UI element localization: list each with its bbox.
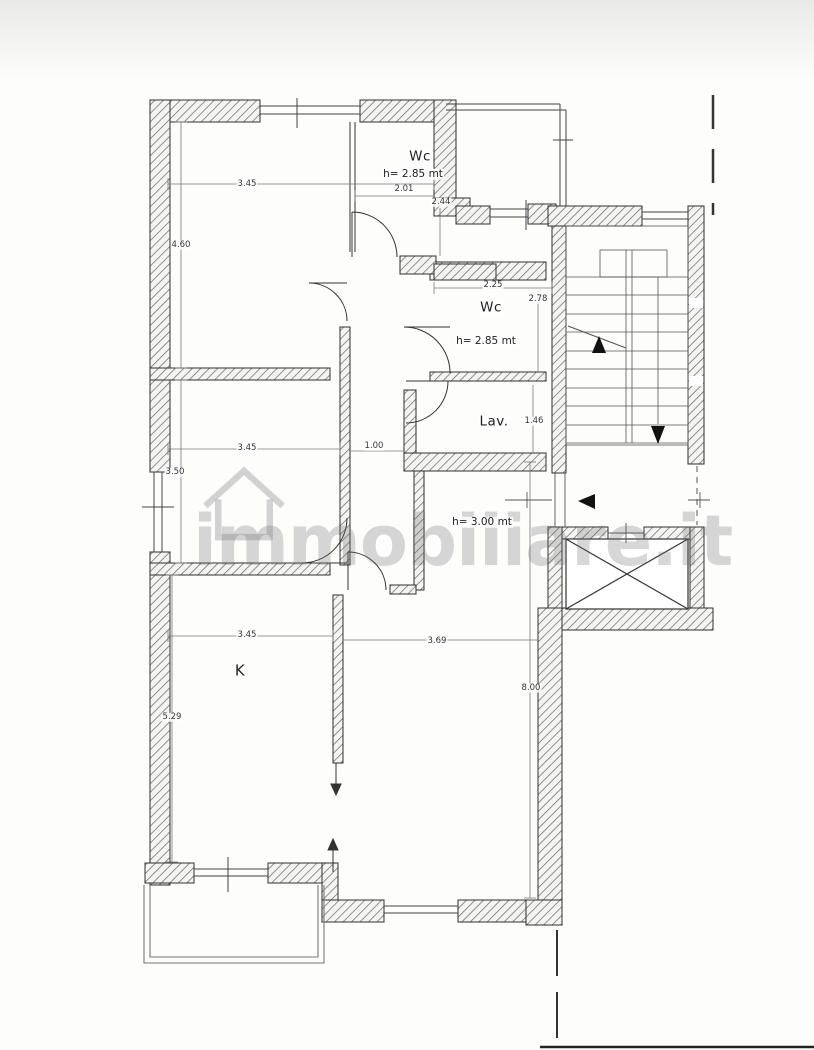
stairs-up-arrow-icon — [592, 336, 606, 353]
passage-down-arrow-icon — [331, 784, 341, 795]
dimension-label-mid-height: 3.50 — [165, 468, 186, 477]
dimension-label-corridor-width: 1.00 — [364, 442, 385, 451]
room-height-wc-top: h= 2.85 mt — [382, 169, 444, 180]
room-label-wc-middle: Wc — [479, 301, 503, 315]
watermark: immobiliare.it — [193, 500, 732, 582]
dimension-label-wc-mid-width: 2.25 — [483, 281, 504, 290]
room-label-laundry: Lav. — [478, 415, 509, 429]
dimension-label-wc-mid-height: 2.78 — [528, 295, 549, 304]
dimension-label-kitchen-height: 5.29 — [162, 713, 183, 722]
dimension-label-right-height: 8.00 — [521, 684, 542, 693]
dimension-label-laundry: 1.46 — [524, 417, 545, 426]
floor-plan-page: immobiliare.it Wc h= 2.85 mt Wc h= 2.85 … — [0, 0, 814, 1050]
stairs-down-arrow-icon — [651, 426, 665, 444]
dimension-label-top-height: 4.60 — [171, 241, 192, 250]
passage-up-arrow-icon — [328, 839, 338, 850]
passage-arrows — [328, 763, 341, 872]
room-label-wc-top: Wc — [408, 150, 432, 164]
room-label-kitchen: K — [234, 664, 246, 679]
balcony — [144, 885, 324, 963]
room-height-hallway: h= 3.00 mt — [451, 517, 513, 528]
dimension-label-kitchen-width: 3.45 — [237, 631, 258, 640]
dimension-label-mid-width: 3.45 — [237, 444, 258, 453]
staircase — [566, 226, 688, 445]
dimension-label-top-width: 3.45 — [237, 180, 258, 189]
dimension-label-wc-top-depth: 2.44 — [431, 198, 452, 207]
dimension-label-living-width: 3.69 — [427, 637, 448, 646]
dimension-label-wc-top-width: 2.01 — [394, 185, 415, 194]
room-height-wc-middle: h= 2.85 mt — [455, 336, 517, 347]
